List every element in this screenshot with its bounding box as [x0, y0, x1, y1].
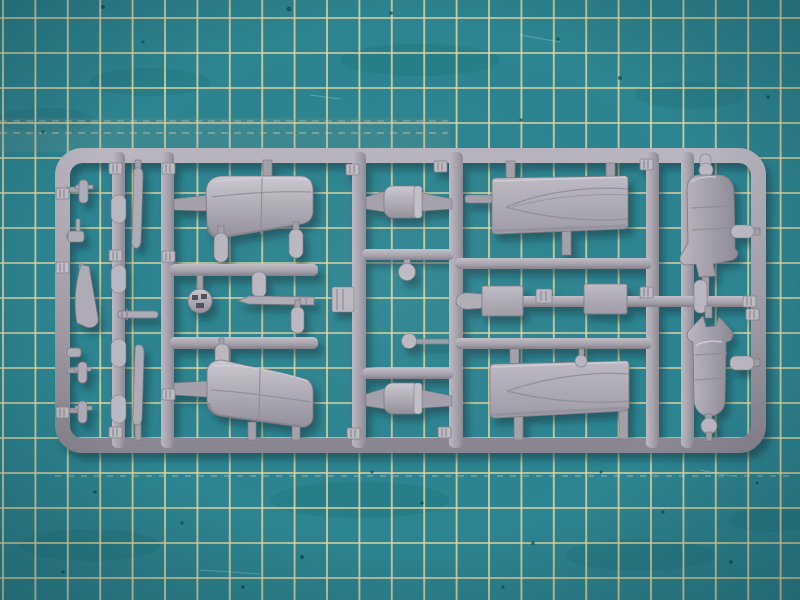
photo-stage: Top-down close-up photograph of a light … — [0, 0, 800, 600]
sprue-photo: Top-down close-up photograph of a light … — [0, 0, 800, 600]
vignette-overlay — [0, 0, 800, 600]
